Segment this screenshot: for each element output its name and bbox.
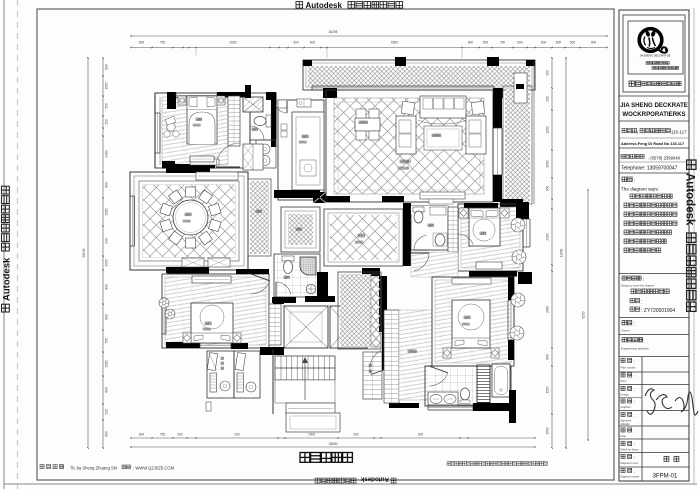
svg-text:Diagram to sort:: Diagram to sort: (621, 462, 639, 465)
svg-text::: : (634, 374, 635, 379)
svg-text::: : (634, 387, 635, 392)
svg-text:1500: 1500 (105, 360, 109, 367)
svg-text:1200: 1200 (546, 126, 550, 133)
svg-text:Telephone: 13059700047: Telephone: 13059700047 (621, 166, 678, 172)
svg-text::: : (634, 413, 635, 418)
svg-text:Engineering address:: Engineering address: (621, 347, 650, 351)
svg-text::: : (643, 277, 644, 283)
svg-text:: ZY720501904: : ZY720501904 (641, 308, 675, 314)
svg-text:2650: 2650 (229, 41, 236, 45)
svg-text:Diagram number:: Diagram number: (621, 476, 641, 479)
svg-text:officially:: officially: (621, 423, 631, 426)
svg-text:JIA SHENG DECKRATE: JIA SHENG DECKRATE (620, 102, 688, 109)
svg-text:2400: 2400 (546, 306, 550, 313)
svg-text:1050: 1050 (105, 82, 109, 89)
svg-text:: (0578) 2399048: : (0578) 2399048 (648, 156, 681, 161)
svg-text:2400: 2400 (105, 150, 109, 157)
svg-text:600: 600 (310, 41, 316, 45)
svg-text::: : (641, 300, 642, 306)
svg-text::: : (634, 178, 635, 184)
svg-text:150: 150 (105, 119, 109, 125)
svg-text:900: 900 (546, 70, 550, 76)
svg-text:Plate number:: Plate number: (621, 367, 637, 370)
svg-text:Address:Feng Di Road No 115-11: Address:Feng Di Road No 115-117 (621, 141, 684, 146)
svg-text:2100: 2100 (546, 233, 550, 240)
svg-text:350: 350 (105, 103, 109, 109)
svg-text::: : (634, 359, 635, 364)
svg-text:Which for Name:: Which for Name: (621, 449, 640, 452)
svg-text:200: 200 (234, 433, 240, 437)
svg-text::: : (643, 339, 644, 345)
svg-text:1500: 1500 (105, 208, 109, 215)
svg-text:1000: 1000 (308, 433, 315, 437)
svg-text:Graphics:: Graphics: (621, 406, 632, 409)
svg-text::: : (634, 429, 635, 434)
svg-text:750: 750 (160, 433, 166, 437)
svg-text:3000: 3000 (546, 160, 550, 167)
svg-text::: : (634, 322, 635, 328)
svg-text:Design to cover the chapter:: Design to cover the chapter: (621, 284, 655, 288)
svg-text:2050: 2050 (105, 259, 109, 266)
svg-text:3FPM-01: 3FPM-01 (653, 474, 678, 480)
svg-text:500: 500 (546, 186, 550, 192)
svg-text:240: 240 (105, 238, 109, 244)
svg-text:200: 200 (177, 433, 183, 437)
svg-text:8250: 8250 (582, 311, 586, 318)
svg-text:JIA SHENG DECORAT-DE: JIA SHENG DECORAT-DE (639, 54, 670, 58)
svg-text:600: 600 (541, 41, 547, 45)
svg-text:900: 900 (591, 41, 597, 45)
svg-text:The diagram says:: The diagram says: (621, 187, 659, 192)
svg-text:600: 600 (105, 387, 109, 393)
svg-text:26045: 26045 (82, 248, 86, 257)
svg-text:750: 750 (500, 41, 506, 45)
svg-text:600: 600 (468, 41, 474, 45)
svg-text:Owner:: Owner: (621, 329, 631, 333)
svg-text::: : (634, 469, 635, 474)
svg-text:500: 500 (570, 41, 576, 45)
svg-text:200: 200 (546, 96, 550, 102)
svg-text:18600: 18600 (329, 442, 338, 446)
svg-text:500: 500 (483, 41, 489, 45)
svg-text:Date:: Date: (621, 435, 627, 438)
svg-text:Plum:: Plum: (621, 380, 628, 383)
svg-text:11330: 11330 (560, 248, 564, 257)
svg-text:6500: 6500 (391, 41, 398, 45)
svg-text:500: 500 (556, 41, 562, 45)
svg-text:Autodesk: Autodesk (306, 1, 343, 10)
svg-text:1500: 1500 (546, 386, 550, 393)
svg-text:|: | (637, 130, 638, 135)
svg-text:Autodesk: Autodesk (360, 476, 389, 483)
svg-text:800: 800 (105, 182, 109, 188)
svg-text:7b Jia Sheng Zhuang Shi: 7b Jia Sheng Zhuang Shi (70, 466, 117, 471)
svg-text:800: 800 (105, 284, 109, 290)
svg-text:Design:: Design: (621, 394, 630, 397)
svg-text:600: 600 (139, 41, 145, 45)
svg-text:750: 750 (105, 338, 109, 344)
svg-text:218: 218 (105, 409, 109, 415)
svg-text::: : (634, 400, 635, 405)
svg-text:1000: 1000 (546, 427, 550, 434)
svg-text:600: 600 (139, 433, 145, 437)
svg-text:26298: 26298 (329, 30, 338, 34)
svg-text::: : (634, 442, 635, 447)
svg-text:750: 750 (160, 41, 166, 45)
svg-text:: WWW.QZJ5Z5.COM: : WWW.QZJ5Z5.COM (133, 466, 175, 471)
svg-text:Autodesk: Autodesk (2, 257, 13, 301)
svg-text:WOCKRPORATIERKS: WOCKRPORATIERKS (622, 111, 685, 118)
svg-text:200: 200 (418, 433, 424, 437)
svg-text:500: 500 (517, 41, 523, 45)
svg-text:800: 800 (546, 354, 550, 360)
svg-text:600: 600 (105, 431, 109, 437)
svg-text::: : (634, 455, 635, 460)
svg-text:115-117: 115-117 (671, 130, 687, 135)
svg-text:600: 600 (293, 41, 299, 45)
svg-text:600: 600 (105, 64, 109, 70)
svg-text:200: 200 (353, 433, 359, 437)
svg-text:600: 600 (105, 314, 109, 320)
